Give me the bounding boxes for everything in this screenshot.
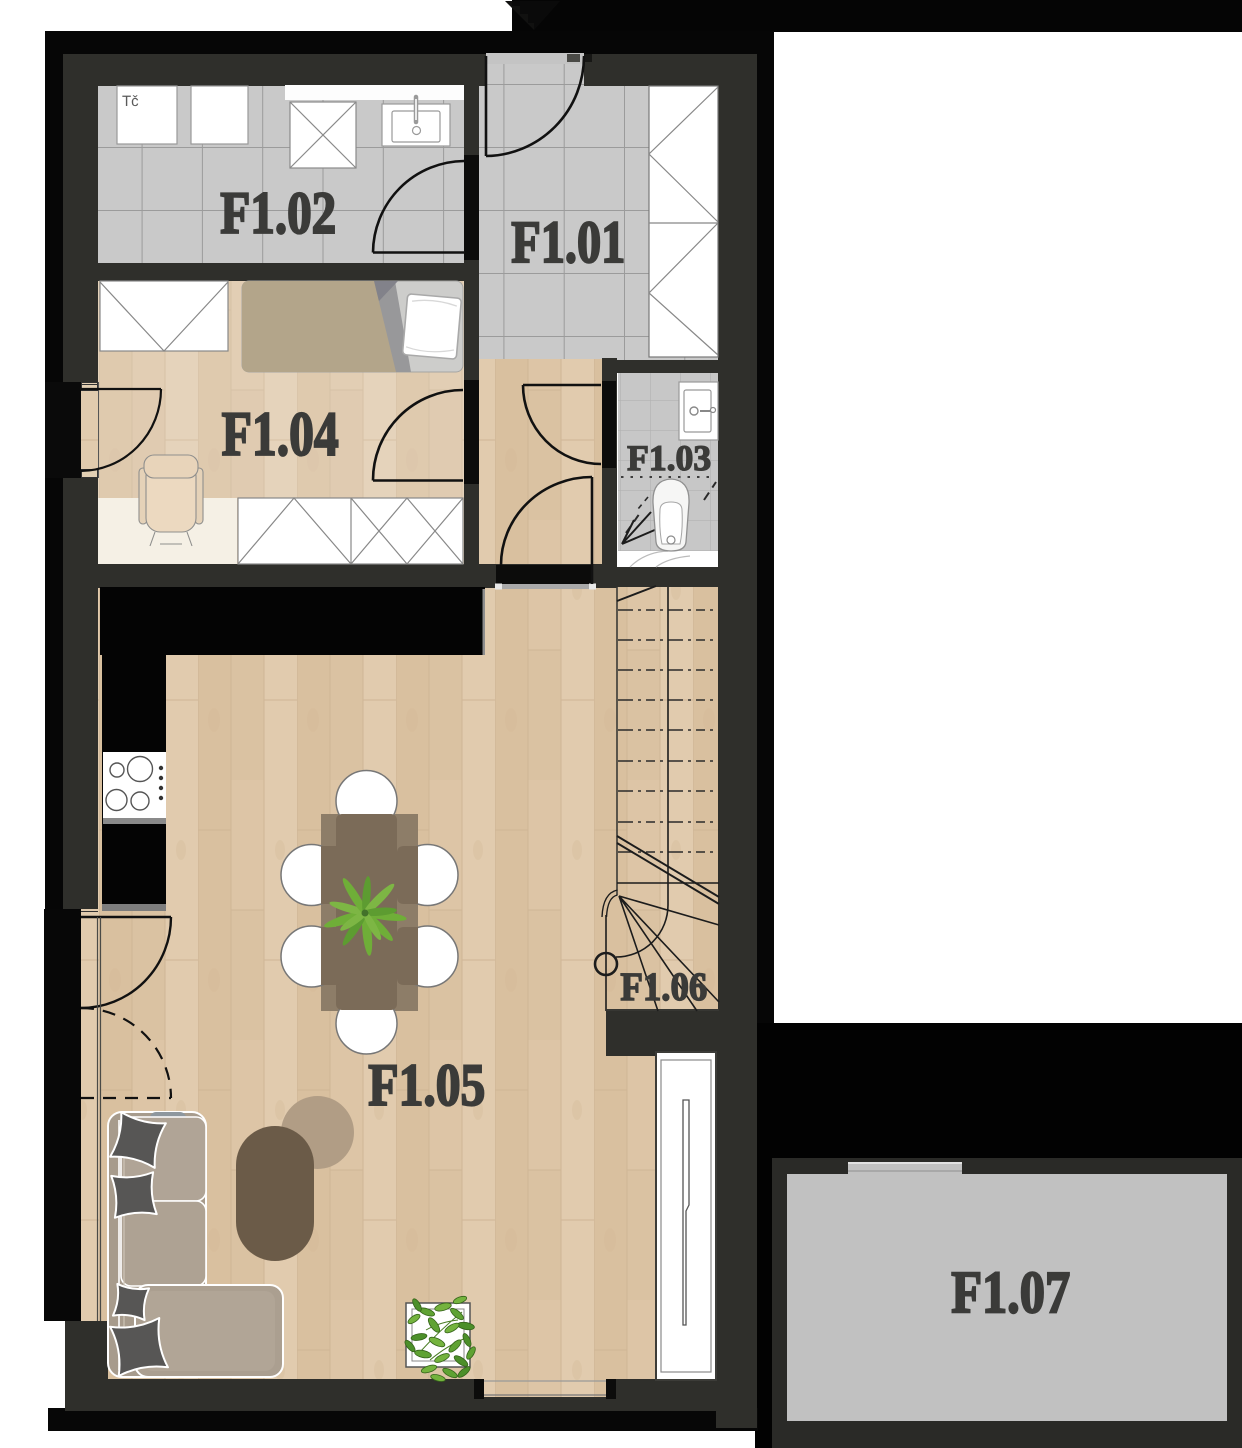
- svg-text:F1.02: F1.02: [220, 180, 336, 246]
- svg-text:F1.01: F1.01: [511, 209, 625, 275]
- svg-text:F1.03: F1.03: [627, 438, 711, 478]
- svg-text:F1.04: F1.04: [222, 399, 339, 469]
- svg-text:F1.05: F1.05: [368, 1052, 485, 1118]
- svg-text:Tč: Tč: [122, 93, 139, 110]
- svg-text:F1.07: F1.07: [951, 1259, 1070, 1325]
- svg-text:F1.06: F1.06: [620, 964, 707, 1009]
